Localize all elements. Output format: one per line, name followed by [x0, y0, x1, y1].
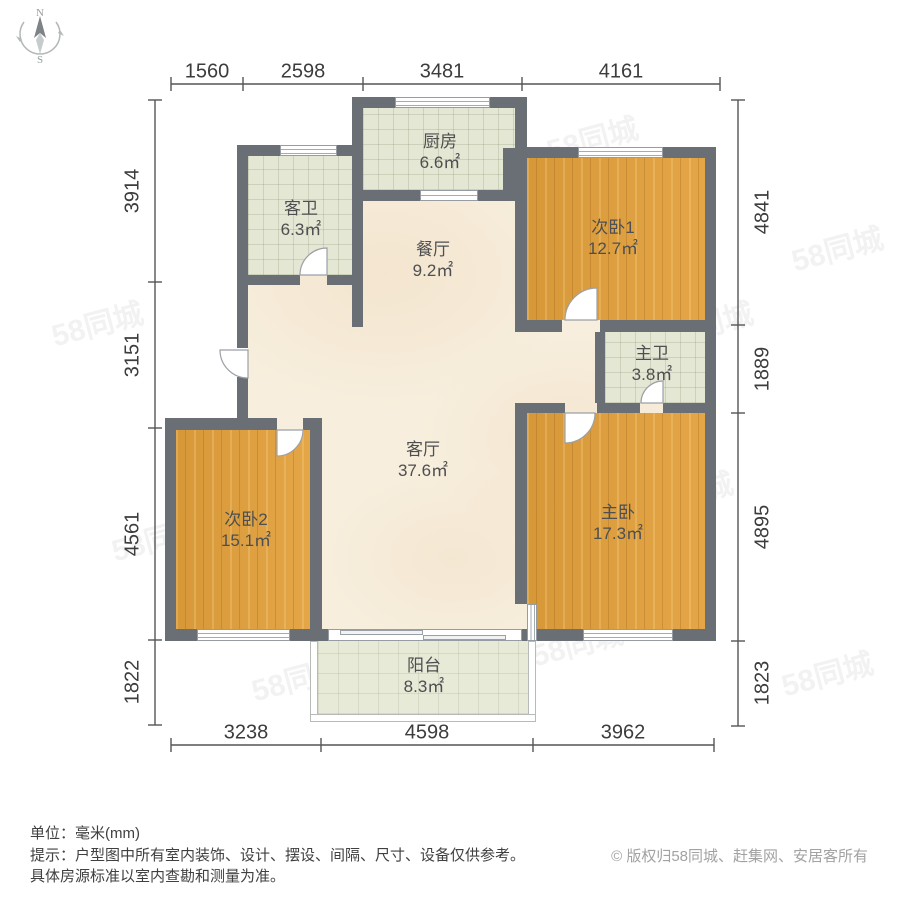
room-label-bedroom2: 次卧2 15.1㎡	[221, 509, 271, 551]
master-bedroom-door	[565, 413, 595, 443]
dim-label: 3481	[420, 61, 465, 84]
bedroom2-door	[277, 430, 303, 456]
copyright-text: © 版权归58同城、赶集网、安居客所有	[611, 845, 868, 866]
room-area: 15.1㎡	[221, 530, 271, 551]
room-label-guest-bath: 客卫 6.3㎡	[281, 198, 322, 240]
footer-unit-line: 单位：毫米(mm)	[30, 823, 140, 844]
room-label-bedroom1: 次卧1 12.7㎡	[588, 217, 638, 259]
guest-bath-door	[300, 248, 327, 275]
floorplan-page: 58同城 58同城 58同城 58同城 58同城 58同城 58同城 58同城 …	[0, 0, 900, 900]
room-label-master-bedroom: 主卧 17.3㎡	[593, 502, 643, 544]
room-label-dining: 餐厅 9.2㎡	[413, 239, 454, 281]
room-label-master-bath: 主卫 3.8㎡	[632, 343, 673, 385]
dim-label: 1823	[752, 661, 775, 706]
room-label-kitchen: 厨房 6.6㎡	[420, 131, 461, 173]
room-area: 6.3㎡	[281, 219, 322, 240]
room-area: 12.7㎡	[588, 238, 638, 259]
dim-label: 3151	[122, 333, 145, 378]
dim-label: 2598	[281, 61, 326, 84]
room-name: 主卧	[593, 502, 643, 523]
dim-label: 4161	[599, 61, 644, 84]
room-name: 次卧1	[588, 217, 638, 238]
room-name: 客卫	[281, 198, 322, 219]
dim-label: 3962	[601, 722, 646, 745]
room-area: 9.2㎡	[413, 260, 454, 281]
dim-label: 1889	[752, 347, 775, 392]
room-area: 8.3㎡	[404, 676, 445, 697]
room-name: 客厅	[398, 439, 448, 460]
entrance-door	[220, 350, 248, 378]
room-area: 17.3㎡	[593, 523, 643, 544]
dim-label: 1822	[122, 660, 145, 705]
dim-label: 1560	[185, 61, 230, 84]
room-area: 6.6㎡	[420, 152, 461, 173]
room-name: 餐厅	[413, 239, 454, 260]
room-name: 主卫	[632, 343, 673, 364]
room-name: 阳台	[404, 655, 445, 676]
dim-label: 3914	[122, 169, 145, 214]
room-area: 37.6㎡	[398, 460, 448, 481]
dim-label: 4598	[405, 722, 450, 745]
room-name: 次卧2	[221, 509, 271, 530]
room-label-living: 客厅 37.6㎡	[398, 439, 448, 481]
dim-label: 4841	[752, 190, 775, 235]
room-name: 厨房	[420, 131, 461, 152]
dimension-lines	[148, 77, 745, 752]
footer-tip-line2: 具体房源标准以室内查勘和测量为准。	[30, 866, 285, 887]
bedroom1-door	[565, 288, 597, 320]
footer-tip-line1: 提示：户型图中所有室内装饰、设计、摆设、间隔、尺寸、设备仅供参考。	[30, 845, 525, 866]
room-area: 3.8㎡	[632, 364, 673, 385]
room-label-balcony: 阳台 8.3㎡	[404, 655, 445, 697]
dim-label: 4895	[752, 505, 775, 550]
dim-label: 4561	[122, 512, 145, 557]
dim-label: 3238	[224, 722, 269, 745]
